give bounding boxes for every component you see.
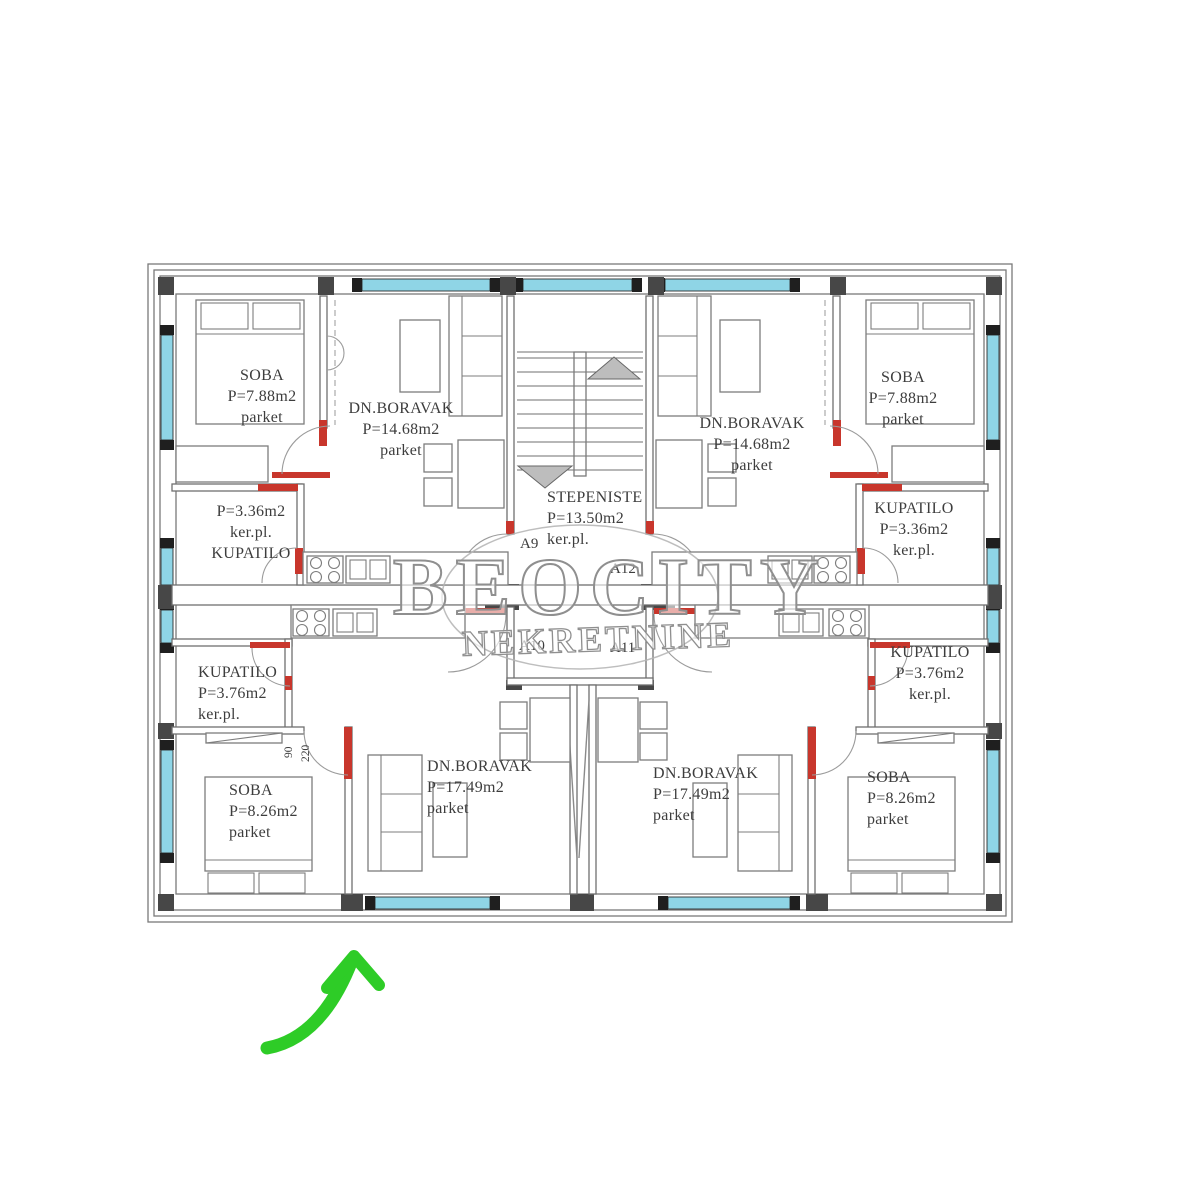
room-floor: parket — [869, 410, 938, 431]
room-area: P=7.88m2 — [869, 389, 938, 410]
room-floor: parket — [867, 810, 936, 831]
unit-label-a11: A11 — [610, 640, 635, 657]
room-area: P=8.26m2 — [229, 802, 298, 823]
room-name: STEPENISTE — [547, 488, 642, 509]
room-label-kupatilo-tl: P=3.36m2 ker.pl. KUPATILO — [211, 502, 290, 564]
floor-plan-page: SOBA P=7.88m2 parket DN.BORAVAK P=14.68m… — [0, 0, 1200, 1200]
labels-layer: SOBA P=7.88m2 parket DN.BORAVAK P=14.68m… — [0, 0, 1200, 1200]
stairwell-label: STEPENISTE P=13.50m2 ker.pl. — [547, 488, 642, 550]
room-area: P=14.68m2 — [699, 435, 804, 456]
room-name: SOBA — [867, 768, 936, 789]
room-area: P=14.68m2 — [348, 420, 453, 441]
room-label-soba-tl: SOBA P=7.88m2 parket — [228, 366, 297, 428]
room-floor: ker.pl. — [890, 685, 969, 706]
room-floor: ker.pl. — [211, 523, 290, 544]
room-label-soba-tr: SOBA P=7.88m2 parket — [869, 368, 938, 430]
room-area: P=3.36m2 — [874, 520, 953, 541]
room-floor: ker.pl. — [198, 705, 277, 726]
room-name: KUPATILO — [198, 663, 277, 684]
room-area: P=3.36m2 — [211, 502, 290, 523]
room-label-boravak-bl: DN.BORAVAK P=17.49m2 parket — [427, 757, 532, 819]
room-floor: parket — [699, 456, 804, 477]
room-label-kupatilo-bl: KUPATILO P=3.76m2 ker.pl. — [198, 663, 277, 725]
room-floor: parket — [653, 806, 758, 827]
room-name: KUPATILO — [874, 499, 953, 520]
room-label-soba-bl: SOBA P=8.26m2 parket — [229, 781, 298, 843]
room-area: P=17.49m2 — [653, 785, 758, 806]
room-label-boravak-tl: DN.BORAVAK P=14.68m2 parket — [348, 399, 453, 461]
room-area: P=13.50m2 — [547, 509, 642, 530]
room-floor: parket — [229, 823, 298, 844]
room-label-boravak-tr: DN.BORAVAK P=14.68m2 parket — [699, 414, 804, 476]
room-floor: parket — [427, 799, 532, 820]
room-area: P=3.76m2 — [890, 664, 969, 685]
room-floor: parket — [348, 441, 453, 462]
room-name: DN.BORAVAK — [699, 414, 804, 435]
room-floor: ker.pl. — [874, 541, 953, 562]
unit-label-a10: A10 — [519, 638, 545, 655]
unit-label-a12: A12 — [610, 561, 636, 578]
room-area: P=7.88m2 — [228, 387, 297, 408]
room-floor: parket — [228, 408, 297, 429]
room-label-soba-br: SOBA P=8.26m2 parket — [867, 768, 936, 830]
room-area: P=3.76m2 — [198, 684, 277, 705]
room-name: SOBA — [229, 781, 298, 802]
door-height-dimension: 220 — [300, 745, 312, 762]
room-label-kupatilo-tr: KUPATILO P=3.36m2 ker.pl. — [874, 499, 953, 561]
room-name: SOBA — [228, 366, 297, 387]
room-label-kupatilo-br: KUPATILO P=3.76m2 ker.pl. — [890, 643, 969, 705]
unit-label-a9: A9 — [520, 536, 538, 553]
room-area: P=8.26m2 — [867, 789, 936, 810]
room-area: P=17.49m2 — [427, 778, 532, 799]
room-name: SOBA — [869, 368, 938, 389]
room-label-boravak-br: DN.BORAVAK P=17.49m2 parket — [653, 764, 758, 826]
door-width-dimension: 90 — [283, 747, 295, 759]
room-floor: ker.pl. — [547, 530, 642, 551]
room-name: DN.BORAVAK — [653, 764, 758, 785]
room-name: DN.BORAVAK — [427, 757, 532, 778]
room-name: KUPATILO — [211, 544, 290, 565]
room-name: KUPATILO — [890, 643, 969, 664]
room-name: DN.BORAVAK — [348, 399, 453, 420]
